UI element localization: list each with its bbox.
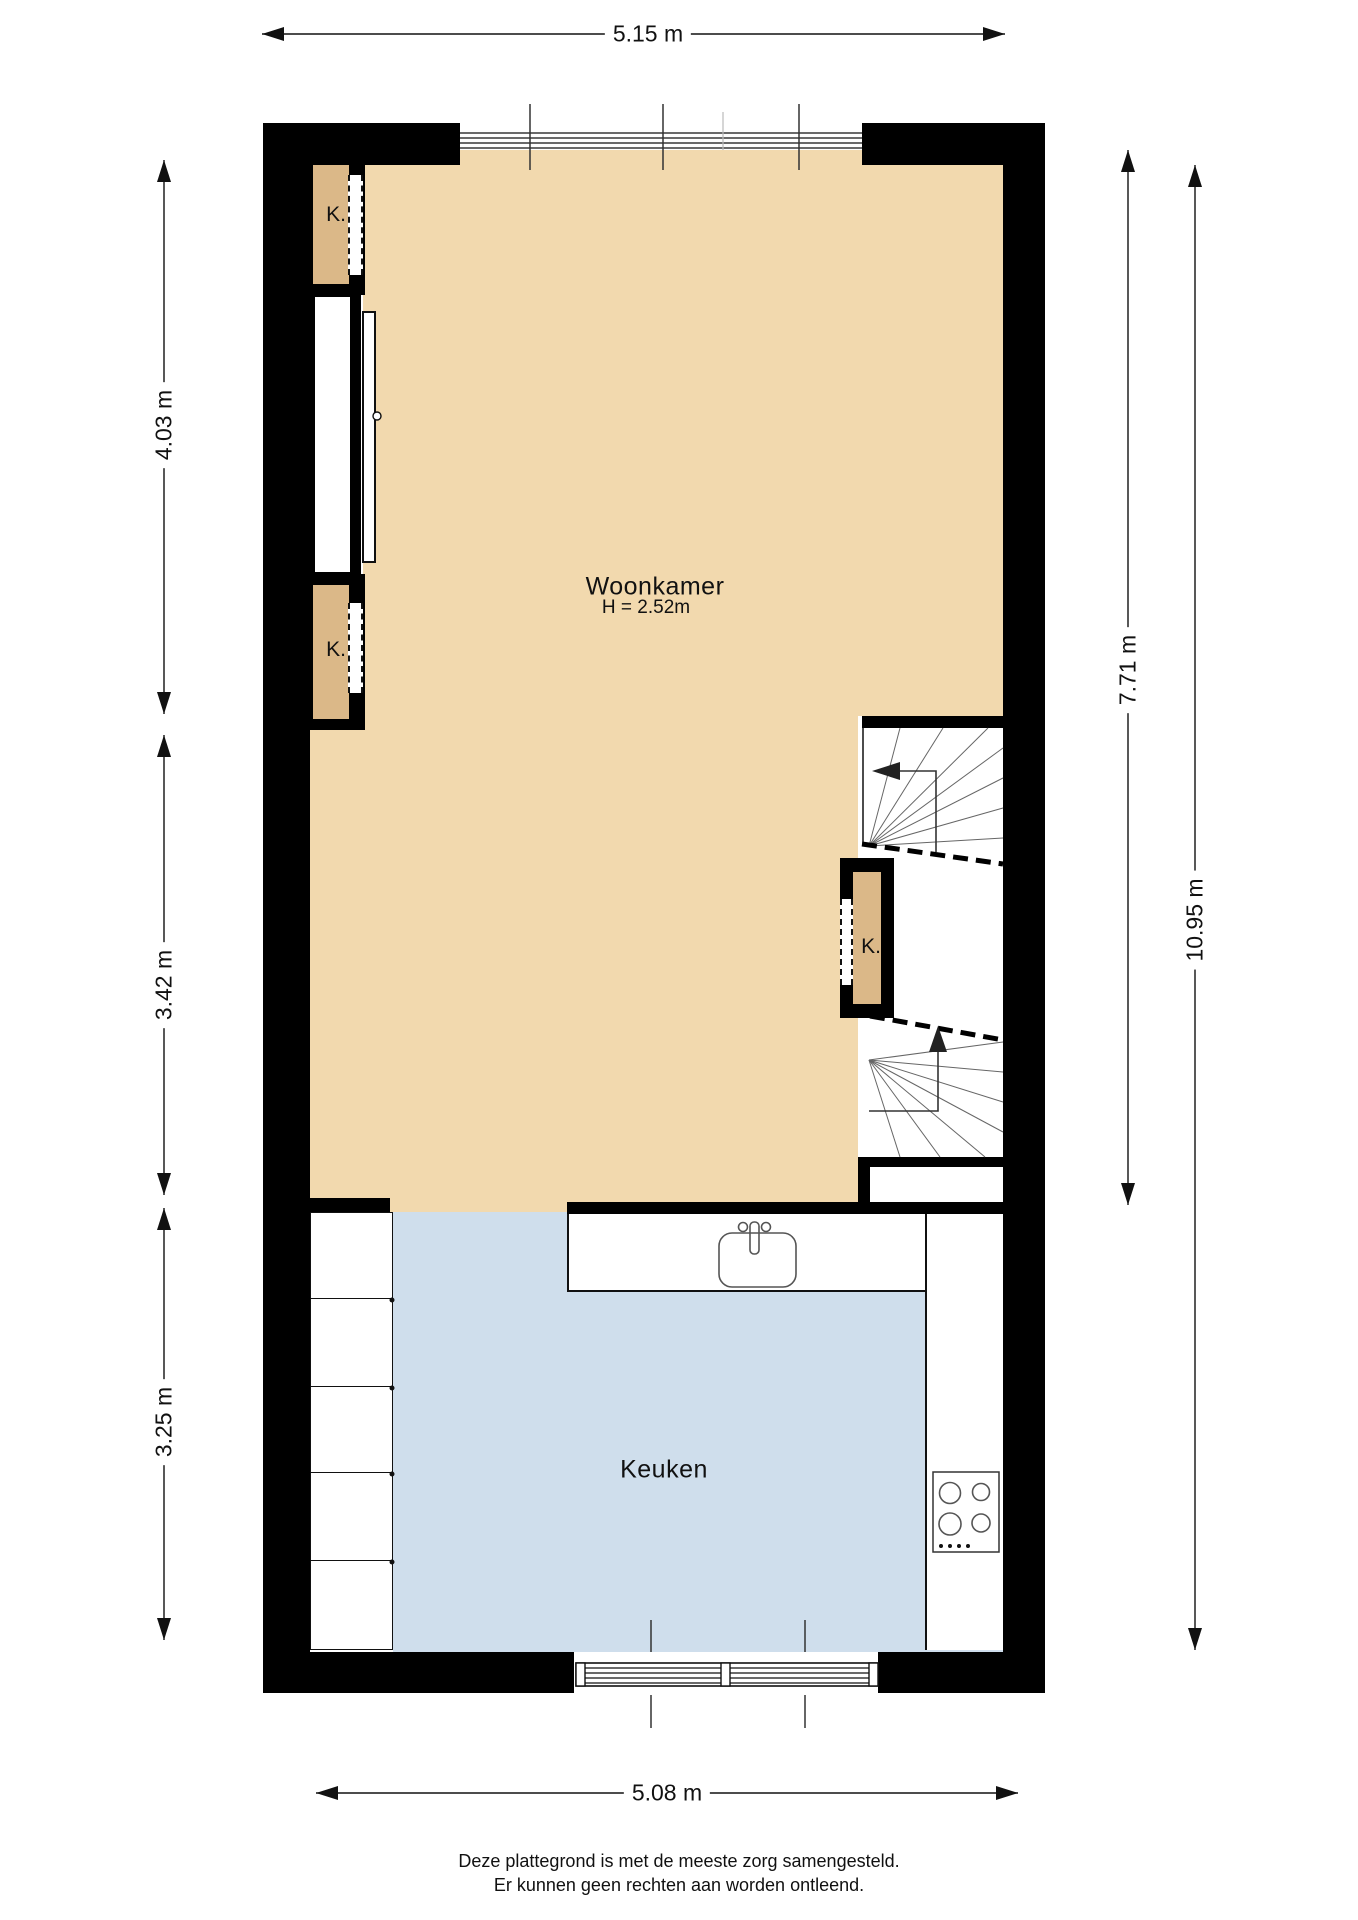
closet-3-label: K.	[861, 935, 881, 959]
closet-2-label: K.	[326, 638, 346, 662]
top-window	[460, 104, 862, 170]
bottom-window	[576, 1620, 878, 1728]
dimension-left-lower: 3.25 m	[149, 1379, 180, 1465]
dimension-top-width: 5.15 m	[605, 19, 691, 50]
dimension-bottom-width: 5.08 m	[624, 1778, 710, 1809]
disclaimer-line-1: Deze plattegrond is met de meeste zorg s…	[458, 1851, 899, 1872]
upper-stairs-direction-arrow-icon	[872, 762, 900, 780]
dimension-left-middle: 3.42 m	[149, 942, 180, 1028]
lower-stairs	[869, 1016, 1003, 1157]
dimension-left-upper: 4.03 m	[149, 382, 180, 468]
dimension-right-inner: 7.71 m	[1113, 627, 1144, 713]
stove-cooktop	[933, 1472, 999, 1552]
dimension-right-outer: 10.95 m	[1180, 870, 1211, 969]
dimension-lines	[157, 27, 1202, 1800]
plan-annotations	[0, 0, 1358, 1920]
niche-door-handle	[373, 412, 381, 420]
closet-1-label: K.	[326, 203, 346, 227]
living-room-ceiling-height: H = 2.52m	[602, 597, 690, 619]
upper-stairs	[862, 728, 1003, 864]
kitchen-label: Keuken	[620, 1456, 708, 1485]
disclaimer-line-2: Er kunnen geen rechten aan worden ontlee…	[494, 1875, 864, 1896]
floorplan-page: { "dimensions": { "top": "5.15 m", "bott…	[0, 0, 1358, 1920]
kitchen-sink	[719, 1222, 796, 1287]
cabinet-knobs	[390, 1298, 395, 1565]
